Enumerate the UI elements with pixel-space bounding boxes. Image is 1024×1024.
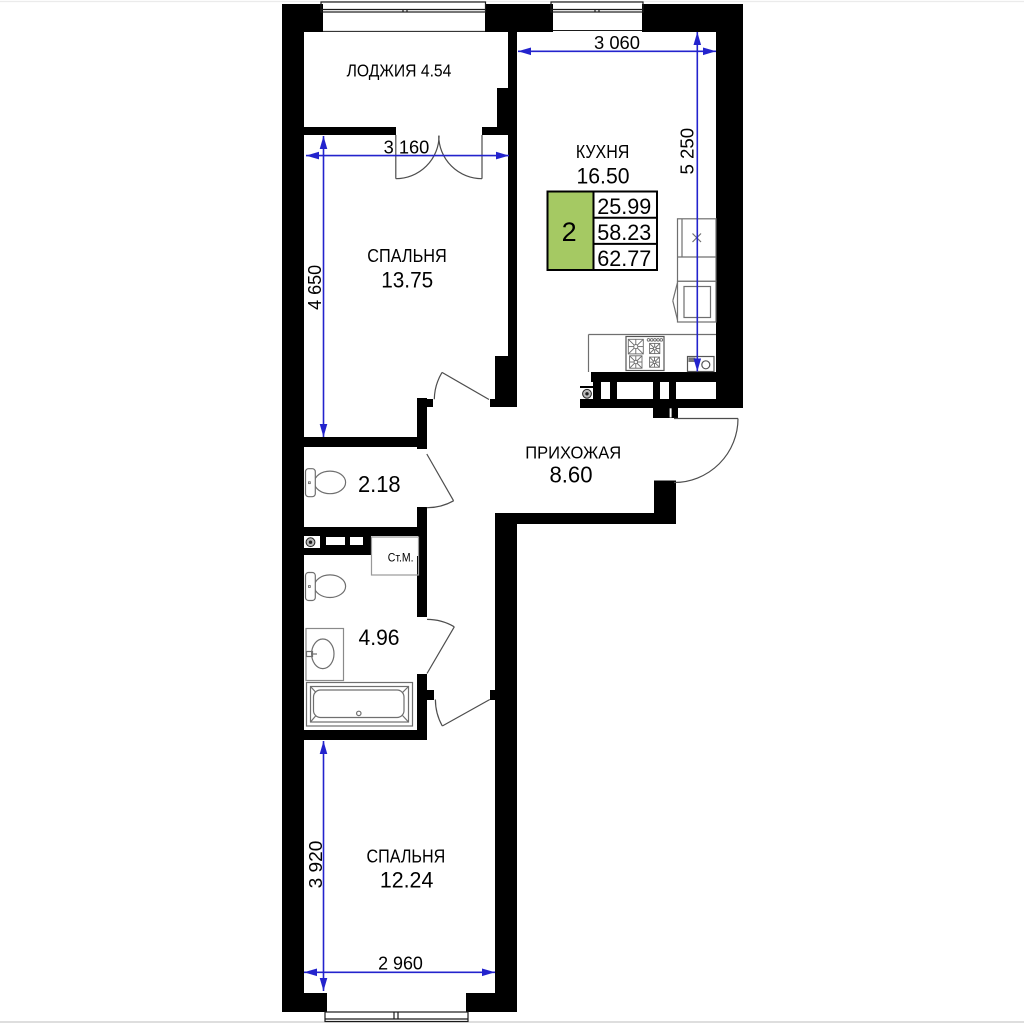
svg-text:12.24: 12.24: [380, 868, 434, 893]
svg-text:3 920: 3 920: [305, 841, 326, 889]
svg-text:4.96: 4.96: [359, 625, 400, 650]
svg-text:СПАЛЬНЯ: СПАЛЬНЯ: [367, 246, 447, 266]
svg-text:ПРИХОЖАЯ: ПРИХОЖАЯ: [525, 443, 621, 463]
svg-text:25.99: 25.99: [597, 194, 651, 219]
svg-text:16.50: 16.50: [577, 164, 630, 189]
svg-text:ЛОДЖИЯ 4.54: ЛОДЖИЯ 4.54: [347, 61, 452, 81]
svg-text:5 250: 5 250: [677, 128, 698, 175]
svg-text:4 650: 4 650: [304, 265, 325, 310]
svg-text:8.60: 8.60: [549, 462, 592, 488]
svg-text:62.77: 62.77: [597, 246, 651, 271]
svg-text:2 960: 2 960: [378, 953, 423, 974]
svg-text:2.18: 2.18: [358, 471, 401, 497]
svg-text:СПАЛЬНЯ: СПАЛЬНЯ: [367, 847, 446, 867]
svg-text:3 160: 3 160: [384, 137, 430, 158]
svg-text:58.23: 58.23: [597, 220, 651, 245]
svg-text:13.75: 13.75: [381, 268, 433, 293]
svg-text:Ст.М.: Ст.М.: [388, 552, 414, 564]
svg-text:3 060: 3 060: [594, 32, 640, 53]
svg-text:2: 2: [562, 217, 577, 247]
svg-text:КУХНЯ: КУХНЯ: [576, 141, 630, 162]
